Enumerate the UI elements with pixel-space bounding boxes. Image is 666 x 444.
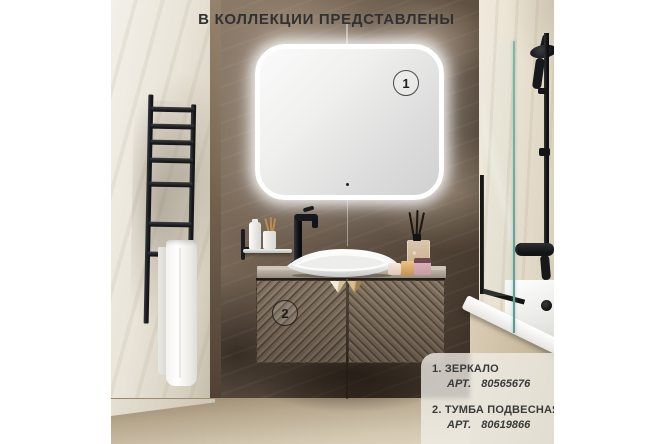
vessel-sink	[284, 240, 400, 278]
legend-item-number: 1.	[432, 363, 442, 375]
pipe-bracket	[538, 88, 548, 94]
legend-panel: 1. ЗЕРКАЛО АРТ. 80565676 2. ТУМБА ПОДВЕС…	[421, 353, 554, 444]
mirror-cable-bottom	[347, 198, 349, 246]
article-number: 80565676	[481, 378, 530, 390]
vanity-door-gap	[346, 279, 348, 363]
bathtub-overflow	[541, 300, 552, 311]
candle-jar-cream	[388, 263, 401, 275]
led-mirror	[255, 44, 444, 200]
vanity-door-left	[256, 280, 347, 363]
article-number: 80619866	[481, 419, 530, 431]
legend-item-article: АРТ. 80565676	[447, 377, 554, 392]
bathroom-photo: 1 2	[111, 0, 554, 444]
glass-shower-screen	[483, 40, 514, 296]
collection-promo-image: 1 2	[0, 0, 666, 444]
pipe-slider-bracket	[539, 148, 550, 156]
legend-item-mirror: 1. ЗЕРКАЛО АРТ. 80565676	[432, 362, 554, 392]
candle-jar-gold	[401, 261, 414, 275]
article-label: АРТ.	[447, 378, 471, 390]
collection-title: В КОЛЛЕКЦИИ ПРЕДСТАВЛЕНЫ	[0, 11, 666, 28]
legend-item-name: ЗЕРКАЛО	[445, 363, 499, 375]
tumbler-cup	[263, 231, 276, 249]
shelf-bracket	[241, 229, 245, 260]
callout-marker-vanity: 2	[272, 300, 298, 326]
callout-number: 1	[402, 76, 409, 91]
diffuser-cap	[413, 234, 421, 241]
ladder-rung	[151, 124, 194, 129]
legend-item-title: 1. ЗЕРКАЛО	[432, 362, 554, 377]
legend-item-title: 2. ТУМБА ПОДВЕСНАЯ	[432, 403, 554, 418]
legend-item-name: ТУМБА ПОДВЕСНАЯ	[445, 404, 554, 416]
wall-mixer-bar	[518, 243, 554, 256]
ladder-rung	[150, 158, 193, 163]
ladder-rung	[150, 140, 193, 145]
shower-column-pipe	[544, 33, 549, 245]
legend-item-number: 2.	[432, 404, 442, 416]
vanity-door-right	[348, 280, 445, 363]
callout-marker-mirror: 1	[393, 70, 419, 96]
wall-corner-edge	[210, 0, 221, 402]
mirror-touch-sensor	[346, 183, 349, 186]
article-label: АРТ.	[447, 419, 471, 431]
ladder-rung	[149, 222, 192, 227]
ladder-rung	[151, 107, 194, 112]
legend-item-vanity: 2. ТУМБА ПОДВЕСНАЯ АРТ. 80619866	[432, 403, 554, 433]
hanging-towel	[166, 240, 197, 386]
ladder-left-rail	[144, 95, 153, 324]
drain-pipe-shadow	[346, 363, 348, 399]
soap-bottle	[249, 222, 261, 249]
glass-teal-edge	[513, 41, 516, 333]
candle-jar-pink	[414, 258, 431, 275]
legend-item-article: АРТ. 80619866	[447, 418, 554, 433]
faucet-spout-tip	[312, 219, 318, 228]
callout-number: 2	[281, 306, 288, 321]
ladder-rung	[149, 182, 192, 187]
